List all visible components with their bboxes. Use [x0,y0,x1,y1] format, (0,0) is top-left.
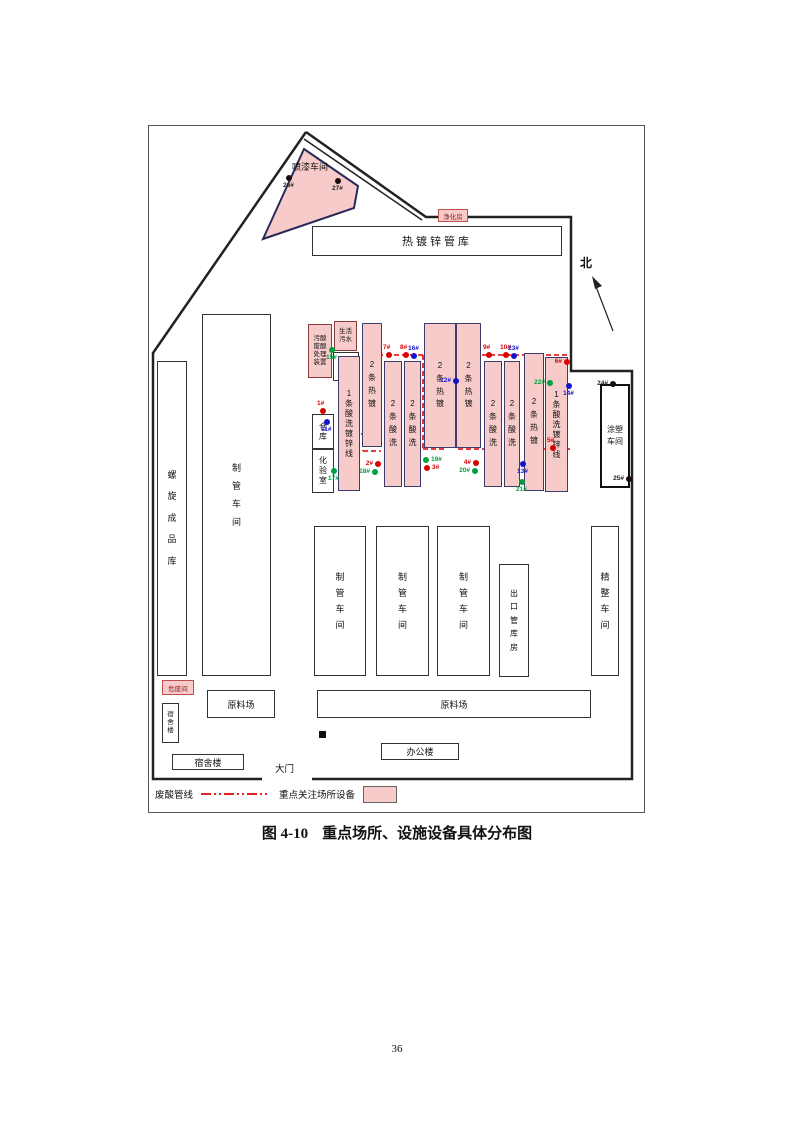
monitor-point-27: 27# [335,178,341,184]
monitor-point-15: 15# [329,347,335,353]
line1-galv-right: 1条酸洗镀锌线 [545,357,568,492]
pickling-f-label: 2条酸洗 [489,398,497,449]
finishing-workshop-label: 精整车间 [601,569,610,634]
monitor-point-8: 8# [403,352,409,358]
pipe-workshop-big-label: 制管车间 [232,459,241,531]
hazardous-waste-room: 危废间 [162,680,194,695]
monitor-point-18: 18# [372,469,378,475]
page-number: 36 [0,1043,794,1055]
north-arrow-head [592,276,602,289]
pickling-b-label: 2条酸洗 [389,398,397,449]
export-pipe-warehouse-label: 出口管库房 [510,587,518,655]
north-arrow-line [595,284,613,331]
hot-galv-h-label: 2条热镀 [530,396,538,447]
figure-title: 重点场所、设施设备具体分布图 [322,826,532,842]
raw-yard-left: 原料场 [207,690,275,718]
figure-frame: 北 喷漆车间 净化房 热镀锌管库 螺旋成品库 制管车间 污酸废酸处理装置 生活污… [148,125,645,813]
hot-galv-a: 2条热镀 [362,323,382,447]
pickling-f: 2条酸洗 [484,361,502,487]
legend-key-sites-label: 重点关注场所设备 [279,787,355,801]
pipe-workshop-3-label: 制管车间 [459,569,468,634]
purify-room: 净化房 [438,209,468,222]
monitor-point-12: 12# [453,378,459,384]
legend-pipeline-label: 废酸管线 [155,787,193,801]
pickling-b: 2条酸洗 [384,361,402,487]
pipe-workshop-big: 制管车间 [202,314,271,676]
finishing-workshop: 精整车间 [591,526,619,676]
office-building: 办公楼 [381,743,459,760]
raw-yard-right: 原料场 [317,690,591,718]
hot-galv-e: 2条热镀 [456,323,481,448]
pickling-g-label: 2条酸洗 [508,398,516,449]
monitor-point-13: 13# [520,461,526,467]
monitor-point-7: 7# [386,352,392,358]
pipe-workshop-1: 制管车间 [314,526,366,676]
domestic-sewage-label: 生活污水 [339,328,352,344]
pipe-workshop-1-label: 制管车间 [336,569,345,634]
monitor-point-6: 6# [564,359,570,365]
export-pipe-warehouse: 出口管库房 [499,564,529,677]
hot-galv-e-label: 2条热镀 [465,360,473,411]
acid-treatment-unit-label: 污酸废酸处理装置 [314,335,327,368]
monitor-point-10: 10# [503,352,509,358]
monitor-point-26: 26# [286,175,292,181]
hot-galv-d-label: 2条热镀 [436,360,444,411]
monitor-point-19: 19# [423,457,429,463]
laboratory-label: 化验室 [319,456,327,486]
monitor-point-4: 4# [473,460,479,466]
monitor-point-11: 11# [324,419,330,425]
monitor-point-16: 16# [411,353,417,359]
hot-galv-d: 2条热镀 [424,323,456,448]
pipe-workshop-3: 制管车间 [437,526,490,676]
document-page: 北 喷漆车间 净化房 热镀锌管库 螺旋成品库 制管车间 污酸废酸处理装置 生活污… [0,0,794,1123]
monitor-point-25: 25# [626,476,632,482]
monitor-point-9: 9# [486,352,492,358]
monitor-point-20: 20# [472,468,478,474]
hot-galv-a-label: 2条热镀 [368,359,376,410]
legend-pipeline-line [199,790,269,798]
line1-galv-left-label: 1条酸洗镀锌线 [345,389,353,459]
pickling-c: 2条酸洗 [404,361,421,487]
monitor-point-5: 5# [550,445,556,451]
coating-workshop-label: 涂塑车间 [607,424,623,448]
monitor-point-24: 24# [610,381,616,387]
pipe-workshop-2: 制管车间 [376,526,429,676]
monitor-point-17: 17# [331,468,337,474]
domestic-sewage: 生活污水 [334,321,357,351]
spiral-product-warehouse-label: 螺旋成品库 [168,465,177,573]
monitor-point-22: 22# [547,380,553,386]
legend: 废酸管线 重点关注场所设备 [155,783,397,805]
line1-galv-left: 1条酸洗镀锌线 [338,356,360,491]
pipe-workshop-2-label: 制管车间 [398,569,407,634]
dormitory-vertical-label: 宿舍楼 [167,711,174,735]
gate-label: 大门 [275,761,294,775]
monitor-point-14: 14# [566,383,572,389]
marker-square [319,731,326,738]
monitor-point-3: 3# [424,465,430,471]
spiral-product-warehouse: 螺旋成品库 [157,361,187,676]
monitor-point-23: 23# [511,353,517,359]
pickling-c-label: 2条酸洗 [409,398,417,449]
monitor-point-21: 21# [519,479,525,485]
paint-shop-label: 喷漆车间 [275,159,345,173]
coating-workshop: 涂塑车间 [600,384,630,488]
galv-pipe-warehouse: 热镀锌管库 [312,226,562,256]
monitor-point-1: 1# [320,408,326,414]
figure-caption: 图 4-10重点场所、设施设备具体分布图 [0,822,794,843]
figure-number: 图 4-10 [262,826,308,842]
dormitory-horizontal: 宿舍楼 [172,754,244,770]
dormitory-vertical: 宿舍楼 [162,703,179,743]
north-label: 北 [580,254,592,271]
legend-key-sites-swatch [363,786,397,803]
monitor-point-2: 2# [375,461,381,467]
